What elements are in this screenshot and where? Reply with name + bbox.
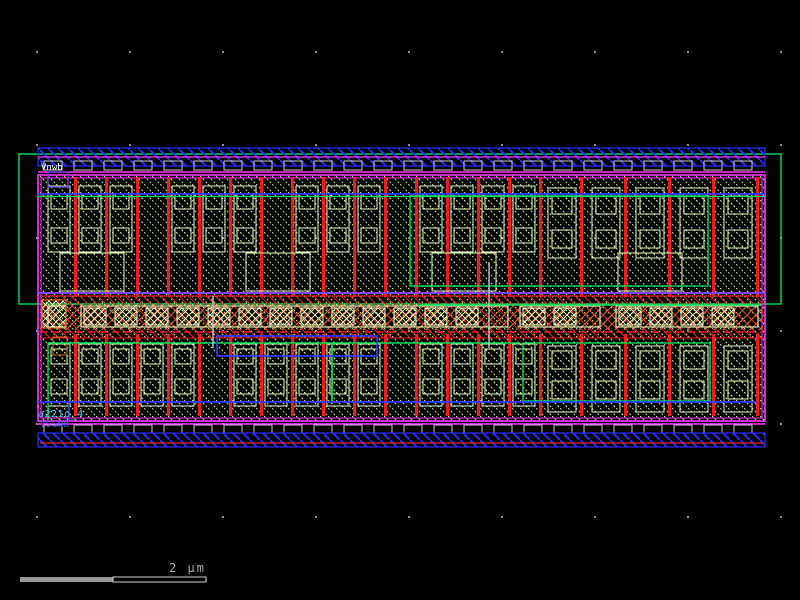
contact-square: [82, 228, 98, 243]
substrate-contact-square: [554, 308, 576, 325]
contact-square: [552, 351, 572, 369]
contact-square: [361, 379, 377, 394]
contact-square: [640, 230, 660, 248]
grid-dot: [594, 144, 596, 146]
contact-square: [516, 228, 532, 243]
poly-gate: [477, 177, 480, 297]
grid-dot: [315, 144, 317, 146]
poly-gate: [580, 334, 583, 416]
substrate-contact-square: [208, 308, 230, 325]
contact-square: [268, 379, 284, 394]
grid-dot: [687, 516, 689, 518]
poly-gate: [446, 177, 449, 297]
scalebar-filled-segment: [20, 577, 113, 582]
contact-square: [113, 379, 129, 394]
contact-square: [596, 196, 616, 214]
contact-square: [206, 228, 222, 243]
contact-square: [596, 230, 616, 248]
grid-dot: [315, 516, 317, 518]
poly-gate: [322, 334, 325, 416]
pin-label-top: Vnwb: [41, 163, 63, 173]
contact-square: [596, 381, 616, 399]
contact-square: [728, 196, 748, 214]
poly-gate: [322, 177, 325, 297]
poly-gate: [668, 334, 671, 416]
grid-dot: [501, 516, 503, 518]
poly-gate: [353, 177, 356, 297]
grid-dot: [36, 144, 38, 146]
poly-gate: [477, 334, 480, 416]
grid-dot: [780, 516, 782, 518]
poly-gate: [105, 334, 108, 416]
grid-dot: [129, 516, 131, 518]
layout-viewport[interactable]: Vnwb a221o_4 VSSNB 2 μm: [0, 0, 800, 600]
contact-square: [485, 349, 501, 364]
grid-dot: [594, 51, 596, 53]
contact-square: [640, 351, 660, 369]
contact-square: [485, 379, 501, 394]
substrate-contact-square: [456, 308, 478, 325]
contact-square: [175, 228, 191, 243]
contact-square: [82, 379, 98, 394]
poly-gate: [260, 334, 263, 416]
contact-square: [423, 349, 439, 364]
poly-gate: [756, 334, 759, 416]
grid-dot: [687, 51, 689, 53]
instance-label: a221o_4: [38, 409, 84, 420]
metal-rail-shape: [38, 433, 765, 447]
grid-dot: [780, 423, 782, 425]
contact-square: [423, 228, 439, 243]
poly-gate: [229, 177, 232, 297]
contact-square: [51, 228, 67, 243]
layout-canvas[interactable]: Vnwb a221o_4 VSSNB 2 μm: [0, 0, 800, 600]
poly-gate: [446, 334, 449, 416]
grid-dot: [36, 51, 38, 53]
contact-square: [684, 381, 704, 399]
contact-square: [423, 379, 439, 394]
substrate-contact-square: [650, 308, 672, 325]
poly-gate: [74, 177, 77, 297]
pin-label-bottom: VSSNB: [40, 420, 70, 430]
contact-square: [684, 230, 704, 248]
poly-gate: [668, 177, 671, 297]
poly-gate: [167, 334, 170, 416]
substrate-contact-square: [146, 308, 168, 325]
grid-dot: [222, 516, 224, 518]
poly-gate: [105, 177, 108, 297]
contact-square: [454, 379, 470, 394]
poly-gate: [624, 177, 627, 297]
substrate-contact-square: [84, 308, 106, 325]
contact-square: [454, 228, 470, 243]
poly-gate: [291, 334, 294, 416]
substrate-contact-square: [270, 308, 292, 325]
poly-gate: [508, 334, 511, 416]
substrate-contact-square: [523, 308, 545, 325]
substrate-contact-square: [363, 308, 385, 325]
substrate-contact-square: [394, 308, 416, 325]
poly-gate: [74, 334, 77, 416]
substrate-contact-strip: [48, 306, 758, 327]
contact-square: [144, 349, 160, 364]
poly-gate: [136, 334, 139, 416]
poly-gate: [229, 334, 232, 416]
poly-gate: [539, 177, 542, 297]
substrate-contact-square: [332, 308, 354, 325]
grid-dot: [594, 516, 596, 518]
scalebar-label: 2 μm: [169, 561, 206, 575]
grid-dot: [129, 144, 131, 146]
poly-gate: [167, 177, 170, 297]
contact-square: [552, 230, 572, 248]
contact-square: [640, 381, 660, 399]
contact-square: [82, 349, 98, 364]
contact-square: [516, 349, 532, 364]
poly-gate: [198, 177, 201, 297]
contact-square: [237, 228, 253, 243]
poly-gate: [756, 177, 759, 297]
poly-gate: [508, 177, 511, 297]
substrate-contact-square: [712, 308, 734, 325]
grid-dot: [687, 144, 689, 146]
poly-gate: [624, 334, 627, 416]
substrate-contact-square: [425, 308, 447, 325]
poly-gate: [384, 177, 387, 297]
contact-square: [51, 379, 67, 394]
contact-square: [299, 228, 315, 243]
contact-square: [684, 196, 704, 214]
poly-gate: [260, 177, 263, 297]
contact-square: [728, 381, 748, 399]
poly-gate: [415, 334, 418, 416]
contact-square: [728, 230, 748, 248]
contact-square: [330, 228, 346, 243]
contact-square: [516, 379, 532, 394]
contact-square: [596, 351, 616, 369]
grid-dot: [36, 516, 38, 518]
contact-square: [684, 351, 704, 369]
contact-square: [175, 379, 191, 394]
contact-square: [113, 228, 129, 243]
substrate-contact-square: [619, 308, 641, 325]
grid-dot: [315, 51, 317, 53]
poly-gate: [415, 177, 418, 297]
poly-gate: [384, 334, 387, 416]
poly-gate: [539, 334, 542, 416]
contact-square: [552, 381, 572, 399]
grid-dot: [780, 51, 782, 53]
contact-square: [175, 349, 191, 364]
substrate-contact-square: [239, 308, 261, 325]
strap-tap-box: [42, 300, 66, 328]
substrate-contact-square: [301, 308, 323, 325]
poly-gate: [198, 334, 201, 416]
contact-square: [237, 379, 253, 394]
contact-square: [361, 228, 377, 243]
grid-dot: [408, 51, 410, 53]
contact-square: [485, 228, 501, 243]
grid-dot: [408, 516, 410, 518]
grid-dot: [222, 144, 224, 146]
poly-gate: [712, 334, 715, 416]
substrate-contact-square: [177, 308, 199, 325]
grid-dot: [501, 51, 503, 53]
grid-dot: [501, 144, 503, 146]
poly-gate: [353, 334, 356, 416]
contact-square: [552, 196, 572, 214]
contact-square: [640, 196, 660, 214]
substrate-contact-square: [681, 308, 703, 325]
contact-square: [144, 379, 160, 394]
grid-dot: [408, 144, 410, 146]
grid-dot: [222, 51, 224, 53]
grid-dot: [780, 144, 782, 146]
poly-gate: [291, 177, 294, 297]
grid-dot: [129, 51, 131, 53]
contact-square: [454, 349, 470, 364]
grid-dot: [780, 330, 782, 332]
poly-gate: [580, 177, 583, 297]
contact-square: [728, 351, 748, 369]
contact-square: [299, 379, 315, 394]
poly-gate: [136, 177, 139, 297]
contact-square: [113, 349, 129, 364]
poly-gate: [712, 177, 715, 297]
grid-dot: [36, 423, 38, 425]
substrate-contact-square: [115, 308, 137, 325]
